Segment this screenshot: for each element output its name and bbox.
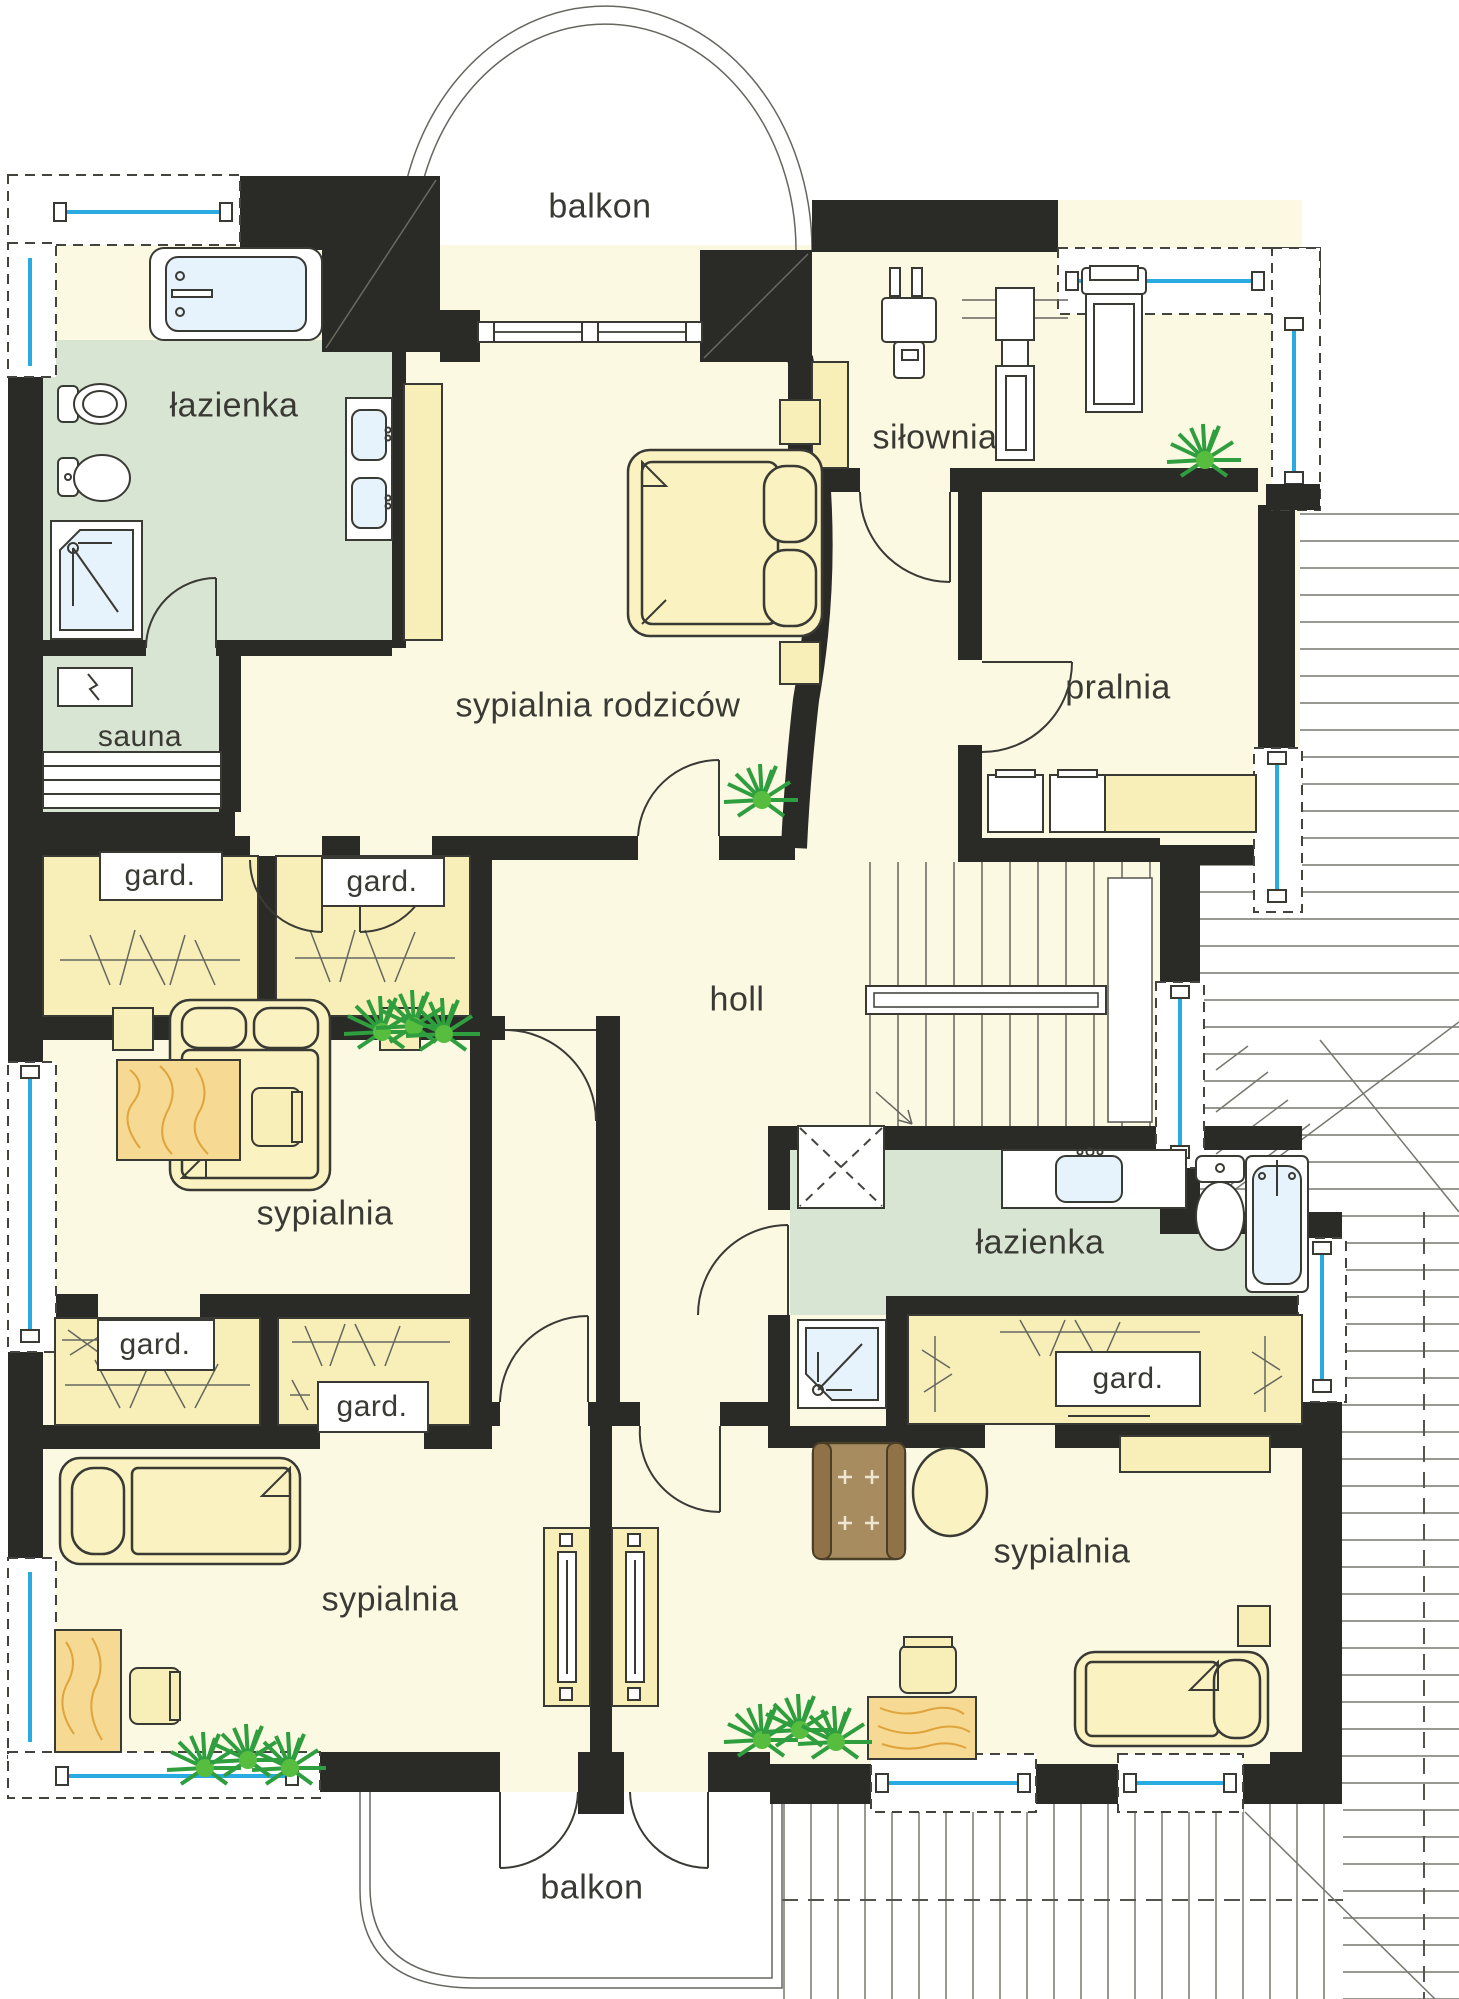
window-bedroom-mid-left (8, 1062, 56, 1352)
nightstand-4 (113, 1008, 153, 1050)
room-label-sauna: sauna (98, 720, 182, 754)
door-balcony-right (630, 1792, 708, 1868)
room-label-master-bedroom: sypialnia rodziców (456, 687, 741, 726)
wall-bedroom-divider (590, 1426, 612, 1752)
room-label-wardrobe-upper-left: gard. (125, 859, 196, 893)
room-label-laundry: pralnia (1065, 669, 1171, 708)
duct-shaft-icon (798, 1126, 884, 1208)
floor-plan: balkon łazienka sauna sypialnia rodziców… (0, 0, 1459, 1999)
room-label-wardrobe-lower-left: gard. (120, 1328, 191, 1362)
master-bedroom-wardrobe (404, 384, 442, 640)
bed-bottom-left (60, 1458, 300, 1564)
toilet-right-icon (1196, 1156, 1244, 1250)
window-bottom-right-1 (871, 1754, 1036, 1812)
door-balcony-left (500, 1792, 578, 1868)
master-bed (628, 450, 822, 636)
room-label-wardrobe-right: gard. (1093, 1362, 1164, 1396)
washbasin-double-icon (346, 398, 392, 540)
bidet-icon (58, 455, 130, 501)
window-stairs (1156, 982, 1204, 1168)
room-label-bathroom-left: łazienka (170, 387, 299, 426)
bed-bottom-right (1075, 1652, 1268, 1746)
laundry-counter (1105, 775, 1256, 832)
nightstand-3 (1238, 1606, 1270, 1646)
treadmill-icon (1082, 266, 1146, 412)
nightstand-1 (780, 400, 820, 444)
room-label-wardrobe-lower-mid: gard. (337, 1390, 408, 1424)
washbasin-right-icon (1002, 1149, 1186, 1209)
room-label-bedroom-bottom-right: sypialnia (994, 1533, 1131, 1572)
room-label-hall: holl (710, 981, 765, 1020)
bathtub-right-icon (1246, 1156, 1308, 1292)
window-laundry (1254, 748, 1302, 912)
room-label-bedroom-mid-left: sypialnia (257, 1195, 394, 1234)
sauna-heater-icon (58, 668, 132, 706)
armchair-icon (813, 1443, 905, 1559)
shower-right-icon (798, 1320, 886, 1408)
room-label-balcony-bottom: balkon (540, 1869, 643, 1908)
room-label-gym: siłownia (873, 419, 998, 458)
room-label-balcony-top: balkon (548, 188, 651, 227)
room-label-bathroom-right: łazienka (976, 1224, 1105, 1263)
window-bottom-right-2 (1118, 1754, 1243, 1812)
room-label-bedroom-bottom-left: sypialnia (322, 1581, 459, 1620)
stair-railing (1108, 878, 1152, 1122)
side-table-icon (913, 1448, 987, 1536)
sliding-balcony-door (478, 322, 702, 342)
sauna-bench-icon (43, 752, 221, 808)
shower-icon (51, 521, 142, 639)
room-label-wardrobe-upper-right: gard. (347, 865, 418, 899)
nightstand-2 (780, 642, 820, 684)
bedroom-br-closet (1120, 1436, 1270, 1472)
bathtub-icon (150, 248, 322, 340)
toilet-icon (58, 384, 126, 424)
